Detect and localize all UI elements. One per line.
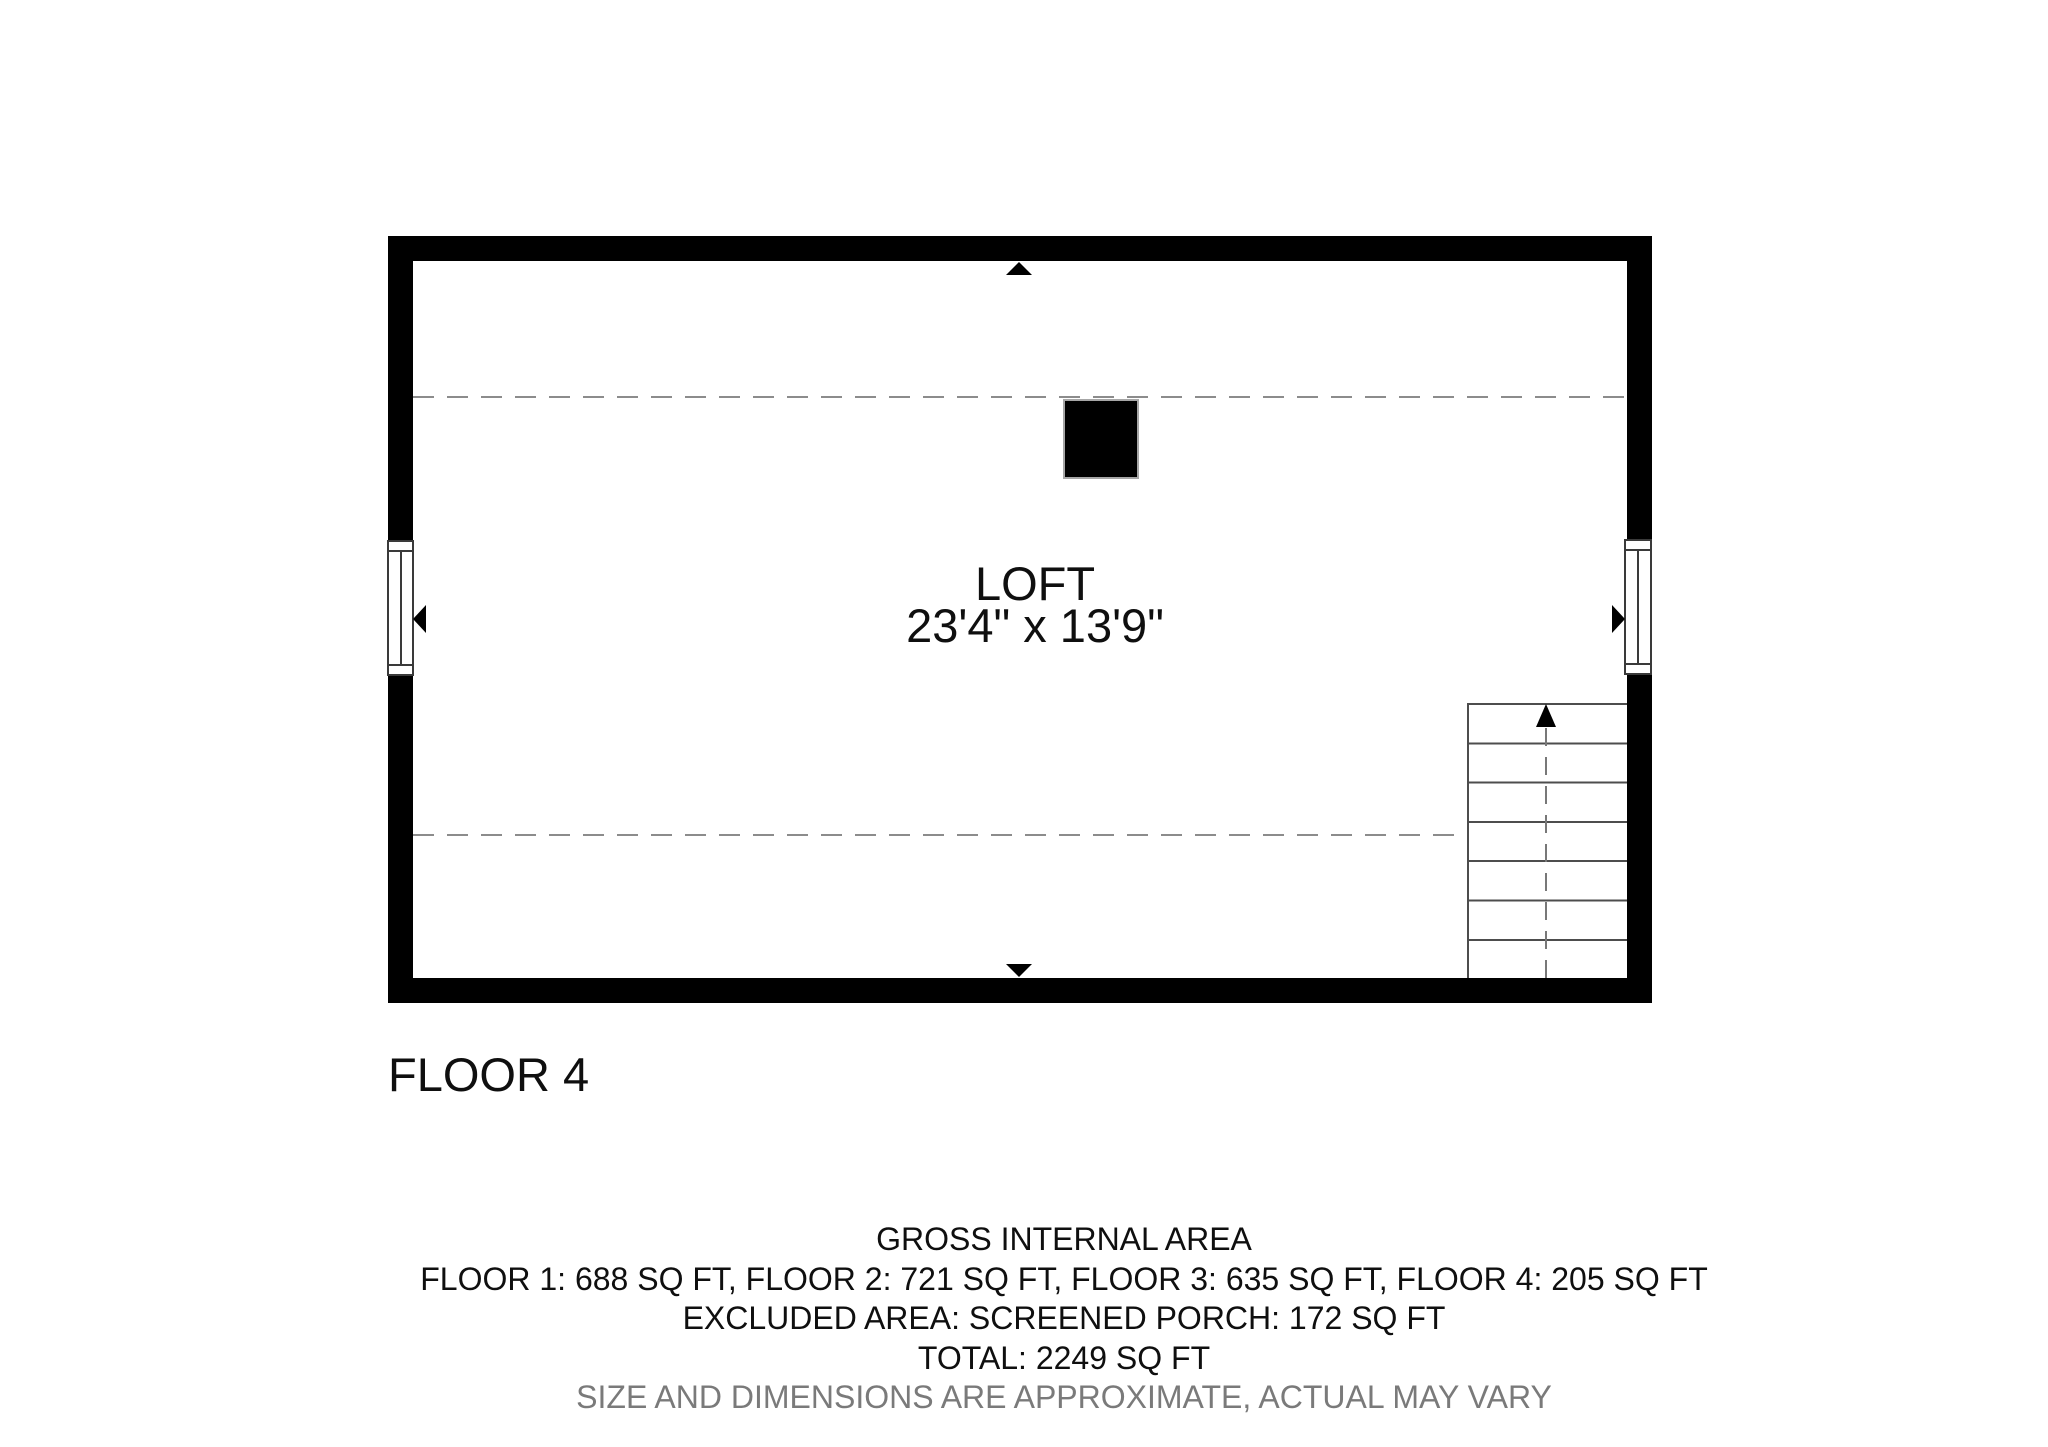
stairs-direction-line <box>1545 728 1547 978</box>
window-frame-line <box>1637 551 1639 663</box>
window-left <box>387 540 414 676</box>
stairs-up-arrow-icon <box>1536 704 1556 727</box>
wall-marker-up-arrow-icon <box>1006 262 1032 275</box>
floor-title: FLOOR 4 <box>388 1051 589 1098</box>
lower-dashed-line <box>413 834 1467 836</box>
area-summary-floors: FLOOR 1: 688 SQ FT, FLOOR 2: 721 SQ FT, … <box>40 1260 2048 1300</box>
window-marker-left-arrow-icon <box>413 605 426 633</box>
stairs <box>1467 703 1627 978</box>
area-summary: GROSS INTERNAL AREA FLOOR 1: 688 SQ FT, … <box>40 1220 2048 1418</box>
window-marker-right-arrow-icon <box>1612 605 1625 633</box>
floor-plan-page: LOFT 23'4" x 13'9" FLOOR 4 GROSS INTERNA… <box>0 0 2048 1447</box>
window-frame-line <box>400 552 402 664</box>
area-summary-total: TOTAL: 2249 SQ FT <box>40 1339 2048 1379</box>
window-frame-line <box>1626 663 1650 665</box>
window-frame-line <box>389 664 412 666</box>
chimney-block <box>1063 399 1139 479</box>
upper-dashed-line <box>413 396 1627 398</box>
wall-marker-down-arrow-icon <box>1006 964 1032 977</box>
room-dimensions-label: 23'4" x 13'9" <box>785 602 1285 649</box>
area-summary-disclaimer: SIZE AND DIMENSIONS ARE APPROXIMATE, ACT… <box>40 1378 2048 1418</box>
area-summary-excluded: EXCLUDED AREA: SCREENED PORCH: 172 SQ FT <box>40 1299 2048 1339</box>
window-right <box>1624 539 1652 675</box>
area-summary-title: GROSS INTERNAL AREA <box>40 1220 2048 1260</box>
